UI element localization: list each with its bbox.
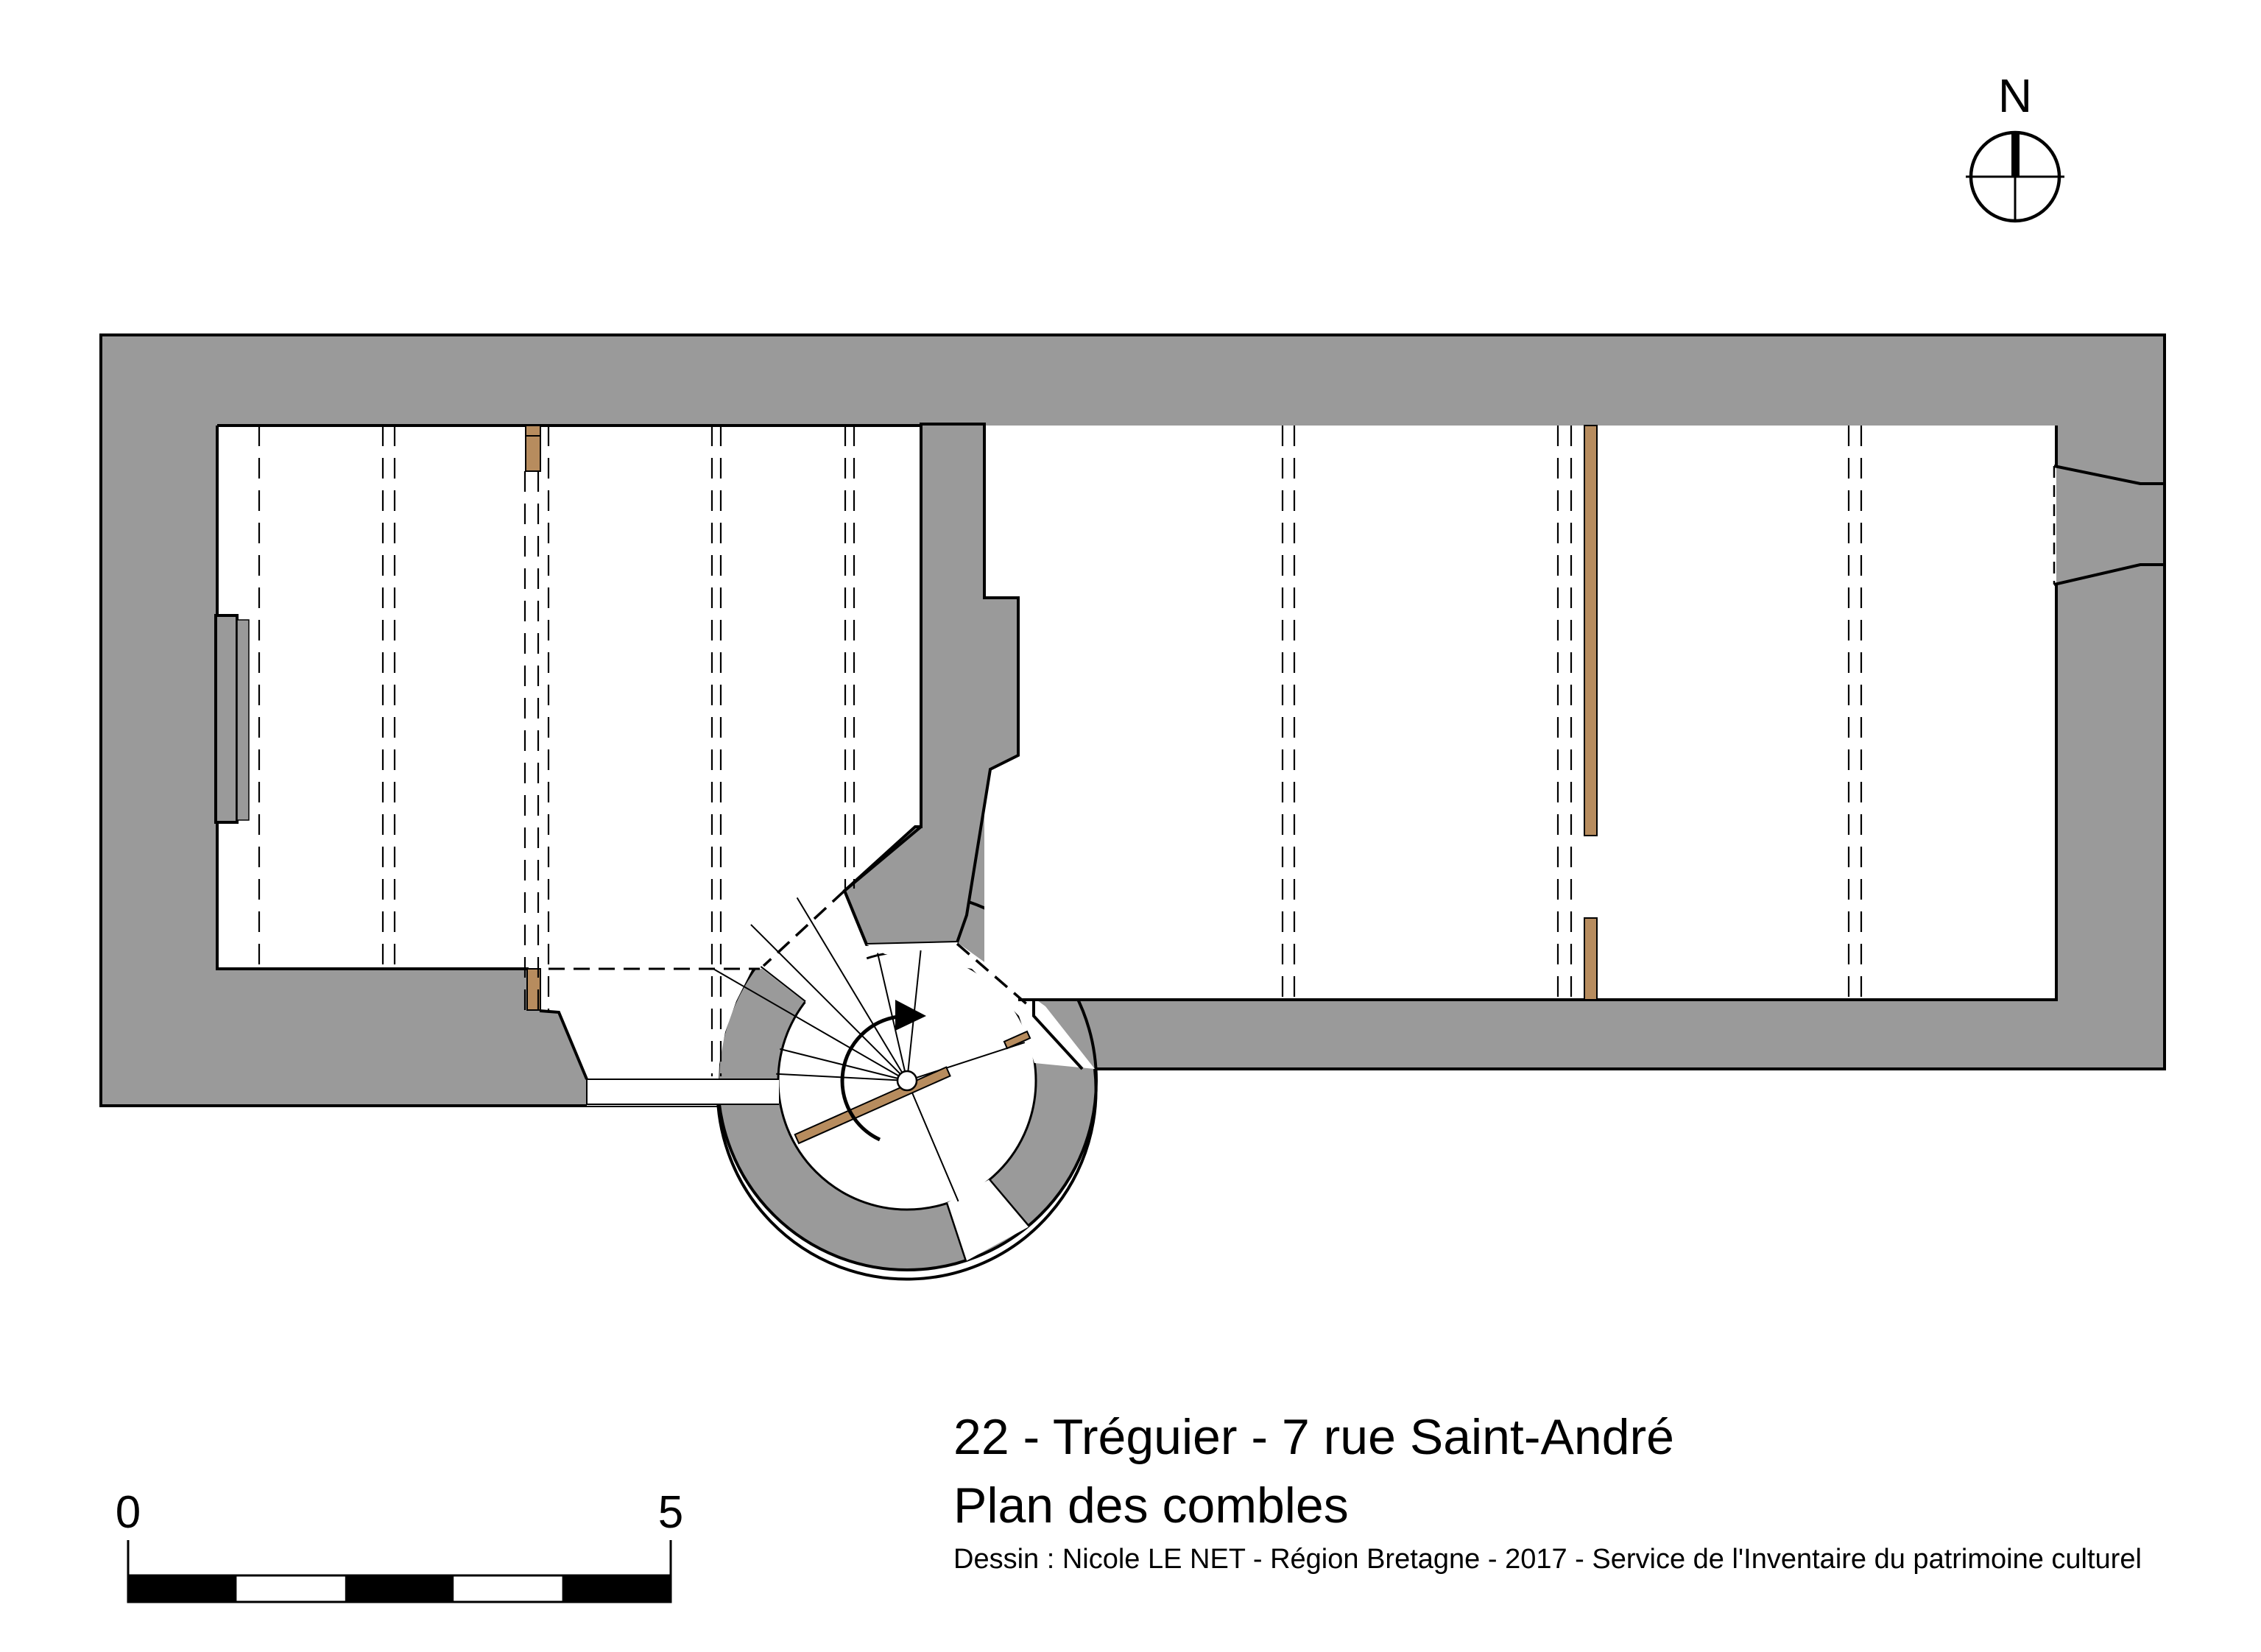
north-label: N [1998,69,2032,122]
drawing-sheet: N 0 5 22 - Tréguier - 7 rue Saint-André … [0,0,2261,1652]
plan-credit: Dessin : Nicole LE NET - Région Bretagne… [953,1544,2142,1575]
wood-post-top [526,426,540,471]
wood-partition-lower [1584,918,1597,1000]
threshold-landing [587,1079,779,1104]
floor-plan: N 0 5 22 - Tréguier - 7 rue Saint-André … [0,0,2261,1652]
scale-end-label: 5 [658,1487,683,1538]
wall-niche [216,615,249,822]
right-room [984,426,2056,1000]
rooms [217,424,2056,1261]
newel-post [897,1071,917,1090]
left-room [217,426,921,969]
title-block: 22 - Tréguier - 7 rue Saint-André Plan d… [953,1409,2142,1575]
north-compass-icon: N [1966,69,2064,221]
scale-start-label: 0 [116,1487,141,1538]
wood-partition-upper [1584,426,1597,836]
scale-bar: 0 5 [116,1487,683,1602]
plan-title-line1: 22 - Tréguier - 7 rue Saint-André [953,1409,1674,1465]
plan-title-line2: Plan des combles [953,1478,1349,1533]
